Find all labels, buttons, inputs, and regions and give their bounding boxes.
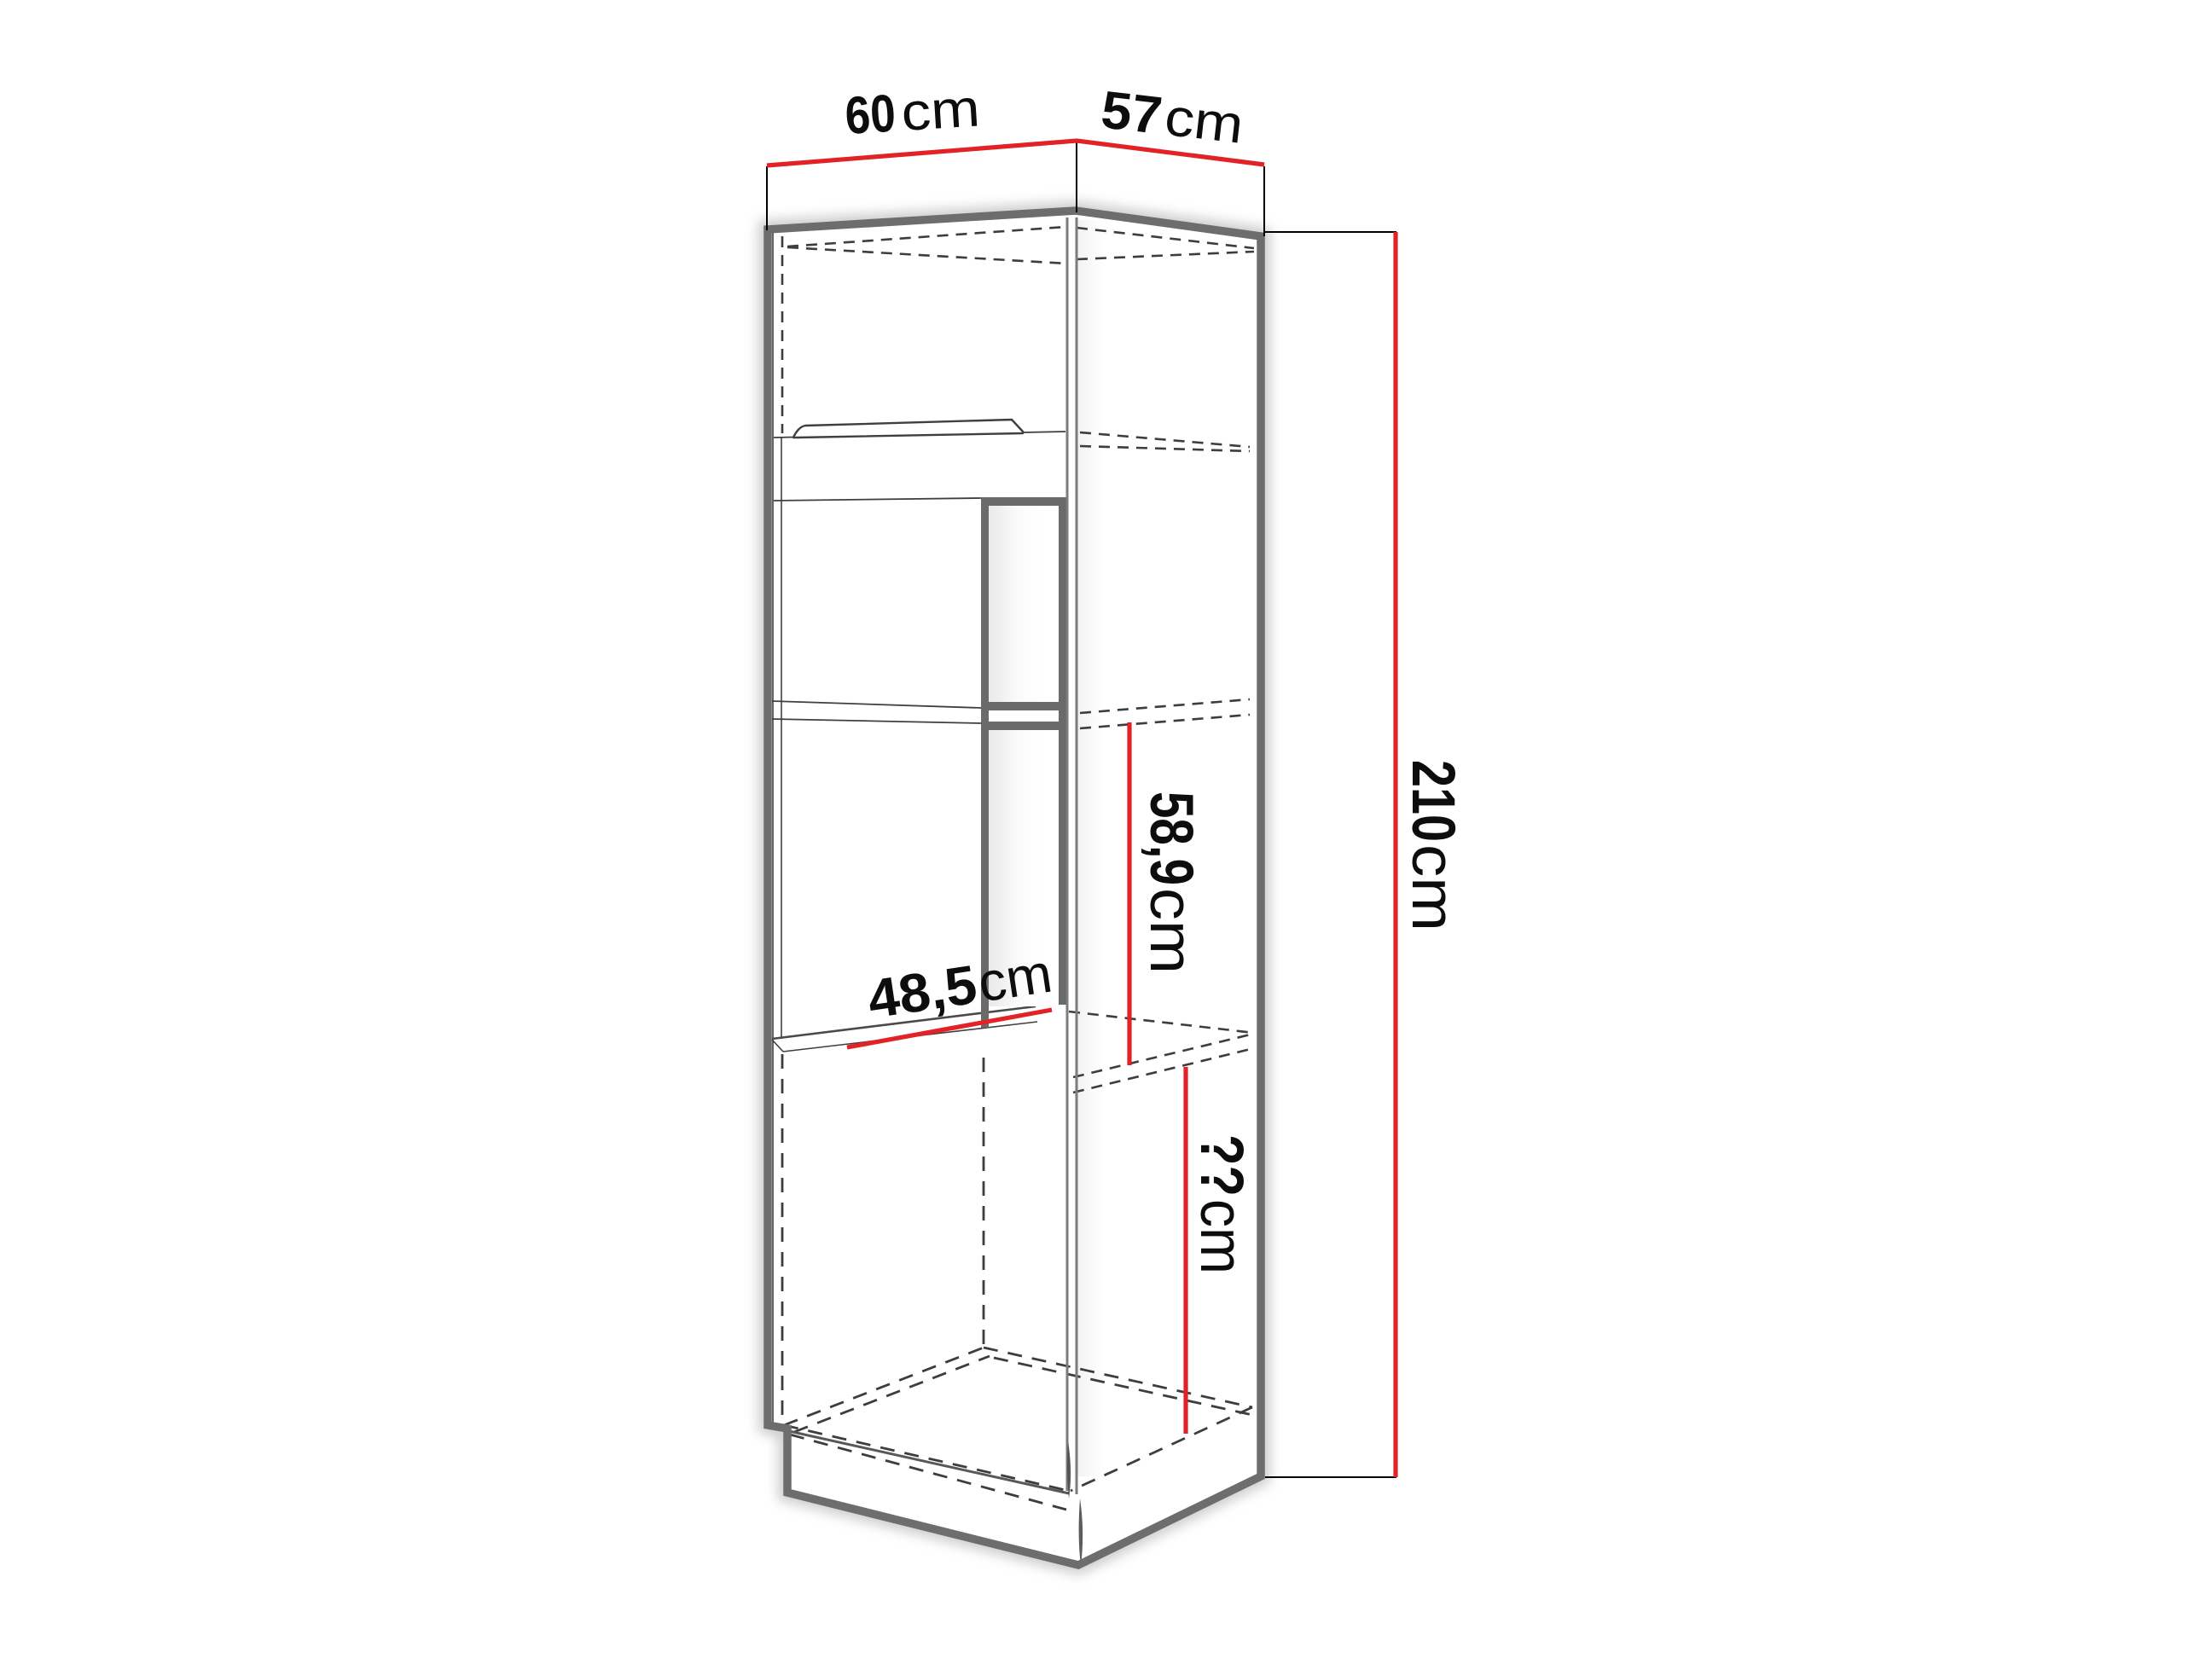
svg-text:210cm: 210cm <box>1399 760 1466 931</box>
svg-text:60cm: 60cm <box>844 78 982 146</box>
svg-text:57cm: 57cm <box>1098 80 1246 154</box>
svg-text:58,9cm: 58,9cm <box>1137 791 1205 974</box>
svg-text:??cm: ??cm <box>1187 1134 1255 1274</box>
